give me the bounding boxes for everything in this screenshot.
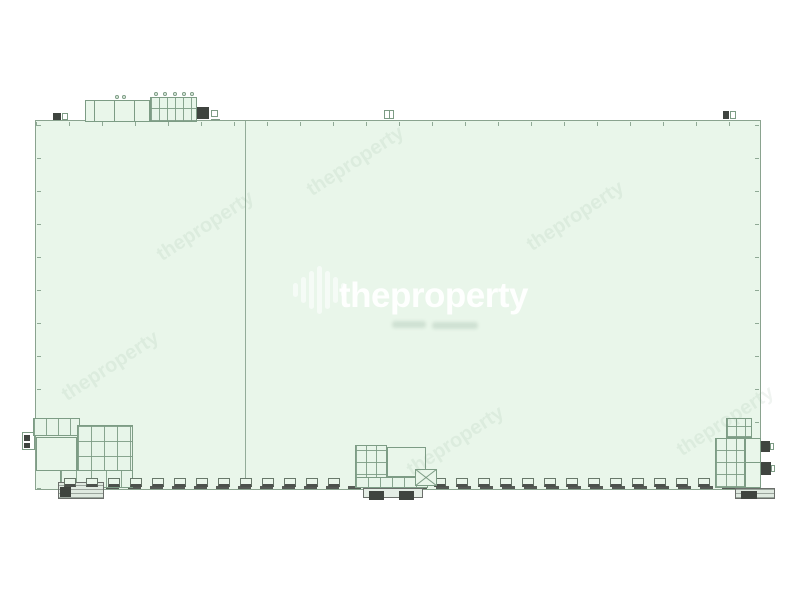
- dock-leveler-symbol: [152, 478, 164, 487]
- dock-leveler-symbol: [566, 478, 578, 487]
- roof-access-symbol: [53, 113, 61, 120]
- dock-leveler-symbol: [456, 478, 468, 487]
- office-room-right-b: [745, 462, 761, 488]
- dock-leveler-symbol: [632, 478, 644, 487]
- left-wall-stair: [24, 435, 30, 441]
- annex-divider: [114, 100, 115, 122]
- office-rooms-right-top: [726, 418, 752, 438]
- top-wall-door-divider: [389, 110, 390, 119]
- column-ticks-right: [755, 121, 759, 489]
- dock-leveler-symbol: [654, 478, 666, 487]
- small-unit-outline: [211, 110, 218, 117]
- dock-leveler-symbol: [500, 478, 512, 487]
- dock-leveler-symbol: [698, 478, 710, 487]
- warehouse-outline: [35, 120, 761, 490]
- left-wall-stair: [24, 443, 30, 448]
- lift-shaft-symbol: [415, 469, 437, 491]
- dock-leveler-symbol: [610, 478, 622, 487]
- dock-leveler-symbol: [218, 478, 230, 487]
- top-right-unit-outline: [730, 111, 736, 119]
- dock-leveler-symbol: [676, 478, 688, 487]
- office-rooms-top: [33, 418, 80, 436]
- fixture-icon: [122, 95, 126, 99]
- office-room-right-a: [745, 438, 761, 463]
- dock-leveler-symbol: [262, 478, 274, 487]
- dock-leveler-symbol: [130, 478, 142, 487]
- right-wall-stair: [761, 462, 771, 475]
- fixture-icon: [163, 92, 167, 96]
- dock-leveler-symbol: [306, 478, 318, 487]
- dock-leveler-symbol: [478, 478, 490, 487]
- entrance-foot: [369, 491, 384, 500]
- dock-leveler-symbol: [196, 478, 208, 487]
- annex-divider: [134, 100, 135, 122]
- office-room-cluster-right: [715, 438, 745, 488]
- dock-leveler-symbol: [328, 478, 340, 487]
- dock-leveler-symbol: [240, 478, 252, 487]
- fixture-icon: [154, 92, 158, 96]
- dock-leveler-symbol: [64, 478, 76, 487]
- dock-leveler-symbol: [522, 478, 534, 487]
- office-room-plain: [36, 437, 77, 471]
- dock-leveler-symbol: [544, 478, 556, 487]
- entrance-foot: [399, 491, 414, 500]
- roof-access-outline: [62, 113, 68, 120]
- dock-leveler-symbol: [108, 478, 120, 487]
- fixture-icon: [115, 95, 119, 99]
- right-wall-stair-outline: [771, 465, 775, 472]
- dock-leveler-symbol: [86, 478, 98, 487]
- interior-partition-wall: [245, 121, 246, 489]
- dock-leveler-symbol: [588, 478, 600, 487]
- dock-leveler-symbol: [284, 478, 296, 487]
- floorplan-canvas: theproperty theproperty theproperty thep…: [0, 0, 800, 600]
- annex-dash: [211, 119, 220, 120]
- entrance-dark-right: [741, 491, 757, 499]
- plant-unit-symbol: [197, 107, 209, 119]
- right-wall-stair-outline: [770, 443, 774, 450]
- fixture-icon: [173, 92, 177, 96]
- right-wall-stair: [761, 441, 770, 452]
- fixture-icon: [190, 92, 194, 96]
- top-right-unit-symbol: [723, 111, 729, 119]
- fixture-icon: [182, 92, 186, 96]
- entrance-dark-left: [60, 487, 71, 497]
- annex-divider: [94, 100, 95, 122]
- annex-toilet-block: [150, 97, 197, 122]
- dock-leveler-symbol: [174, 478, 186, 487]
- column-ticks-top: [36, 122, 760, 126]
